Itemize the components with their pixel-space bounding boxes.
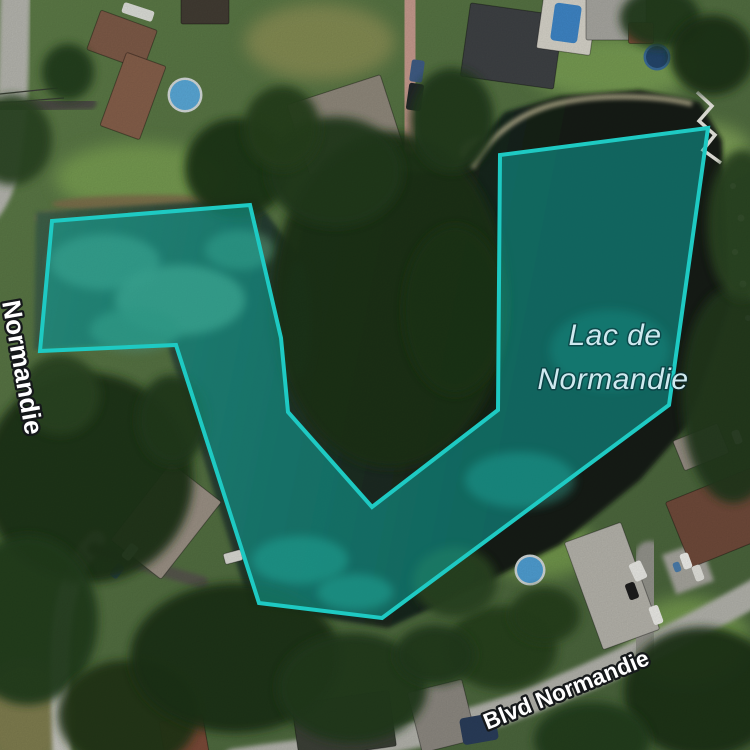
map-canvas[interactable]: Lac de Normandie Normandie Blvd Normandi… [0,0,750,750]
lake-name-label-line1: Lac de [568,319,661,352]
lake-name-label-line2: Normandie [537,363,688,396]
satellite-map: Lac de Normandie Normandie Blvd Normandi… [0,0,750,750]
